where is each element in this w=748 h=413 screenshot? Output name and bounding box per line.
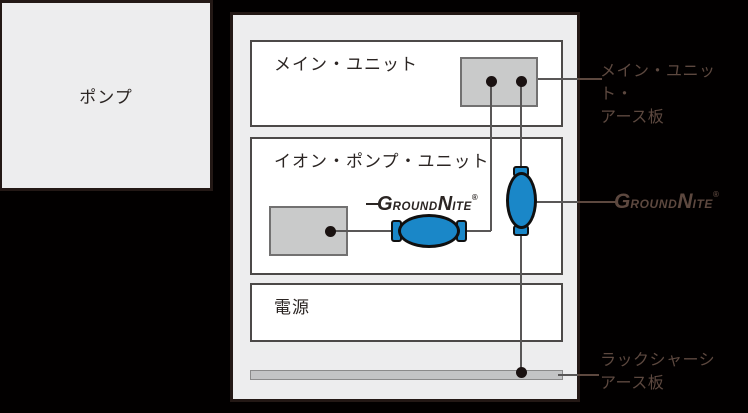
annotation-main-earth: メイン・ユニット・ アース板 xyxy=(600,60,748,129)
wire-left-dot-down xyxy=(490,81,492,231)
connection-dot-plate-right xyxy=(516,76,527,87)
groundnite-logo-round: ROUND xyxy=(393,202,438,214)
annotation-main-earth-line1: メイン・ユニット・ xyxy=(600,60,748,106)
annotation-chassis-earth-line1: ラックシャーシ xyxy=(600,349,715,372)
unit-main-label: メイン・ユニット xyxy=(274,50,418,75)
connection-dot-ion-box xyxy=(325,226,336,237)
groundnite-logo-n: N xyxy=(438,194,452,214)
groundnite-logo-round: ROUND xyxy=(630,198,677,210)
groundnite-logo-annotation: GROUNDNITE® xyxy=(603,191,719,212)
groundnite-logo-n: N xyxy=(677,191,692,212)
unit-power: 電源 xyxy=(250,283,563,342)
connection-dot-chassis-bar xyxy=(516,367,527,378)
annotation-chassis-earth-line2: アース板 xyxy=(600,372,715,395)
groundnite-logo-g: G xyxy=(614,191,630,212)
groundnite-logo-reg: ® xyxy=(713,191,719,199)
annotation-chassis-earth: ラックシャーシ アース板 xyxy=(600,349,715,395)
leader-groundnite xyxy=(578,201,605,203)
diagram-canvas: ポンプ メイン・ユニット イオン・ポンプ・ユニット 電源 GROUNDNITE®… xyxy=(0,0,748,413)
unit-power-label: 電源 xyxy=(274,293,310,318)
pump-box: ポンプ xyxy=(0,0,213,191)
wire-device-to-edge xyxy=(536,201,580,203)
unit-ion-pump-label: イオン・ポンプ・ユニット xyxy=(274,147,490,172)
groundnite-logo-reg: ® xyxy=(472,194,478,202)
groundnite-device-horizontal xyxy=(398,214,460,248)
pump-label: ポンプ xyxy=(79,83,133,108)
groundnite-device-vertical xyxy=(506,172,537,229)
groundnite-logo-g: G xyxy=(377,194,393,214)
leader-chassis-earth xyxy=(578,374,599,376)
leader-main-earth xyxy=(578,78,602,80)
groundnite-logo-diagram: GROUNDNITE® xyxy=(366,194,478,214)
annotation-main-earth-line2: アース板 xyxy=(600,106,748,129)
wire-main-plate-to-edge xyxy=(538,78,580,80)
connection-dot-plate-left xyxy=(486,76,497,87)
wire-bar-to-edge xyxy=(558,374,580,376)
groundnite-logo-ite: ITE xyxy=(693,198,713,210)
groundnite-logo-ite: ITE xyxy=(452,202,472,214)
